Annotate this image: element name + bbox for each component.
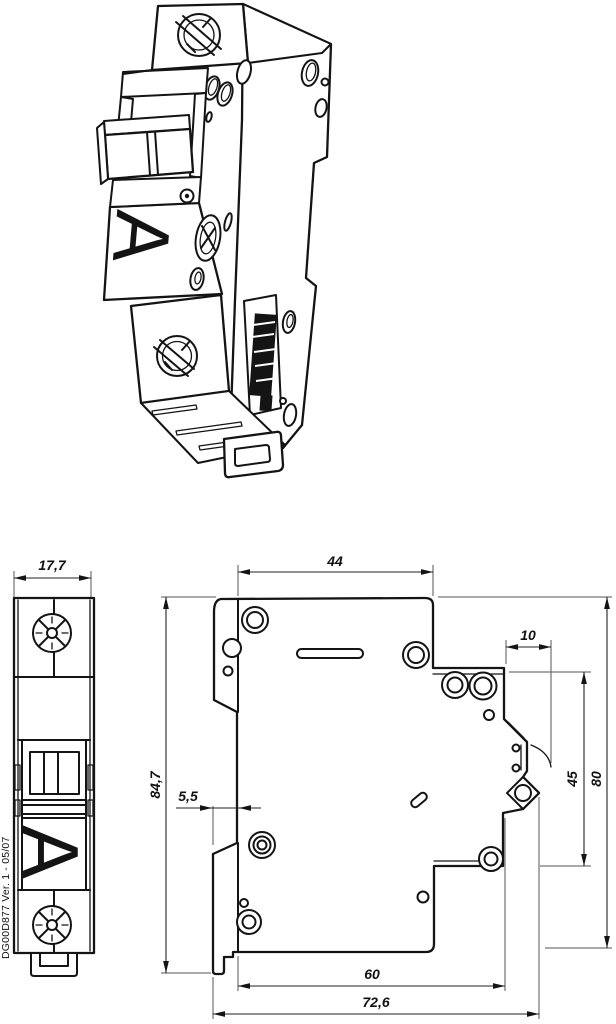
side-body <box>213 598 539 974</box>
dim-rail-recess-height-value: 45 <box>564 771 580 788</box>
drawing-canvas: A <box>0 0 616 1024</box>
doc-reference: DG00D877 Ver. 1 - 05/07 <box>0 836 12 959</box>
dim-rail-notch-value: 10 <box>520 627 536 643</box>
iso-current-marking: A <box>96 207 188 267</box>
front-clip-tab <box>31 953 77 976</box>
front-view: 17,7 A DG00D877 Ver. 1 - 05 <box>0 557 95 976</box>
dim-overall-height-value: 84,7 <box>147 770 163 798</box>
dim-front-width-value: 17,7 <box>38 557 66 573</box>
dim-top-depth-value: 44 <box>326 553 343 569</box>
dim-overall-depth-value: 72,6 <box>362 994 389 1010</box>
front-toggle <box>30 752 79 794</box>
dim-front-step-value: 5,5 <box>178 788 198 804</box>
iso-toggle-assembly <box>97 68 208 207</box>
side-view: 44 84,7 5,5 10 45 <box>147 553 612 1019</box>
dimension-top-depth: 44 <box>238 553 433 596</box>
dim-rail-depth-value: 60 <box>364 966 380 982</box>
dimension-overall-height: 84,7 <box>147 597 216 973</box>
dimension-front-width: 17,7 <box>14 557 91 597</box>
isometric-view: A <box>96 4 331 477</box>
iso-rating-label <box>244 295 281 415</box>
front-current-marking: A <box>4 825 95 880</box>
dim-mounting-height-value: 80 <box>588 771 604 787</box>
technical-drawing-sheet: A <box>0 0 616 1024</box>
side-vent-slot <box>297 649 363 658</box>
